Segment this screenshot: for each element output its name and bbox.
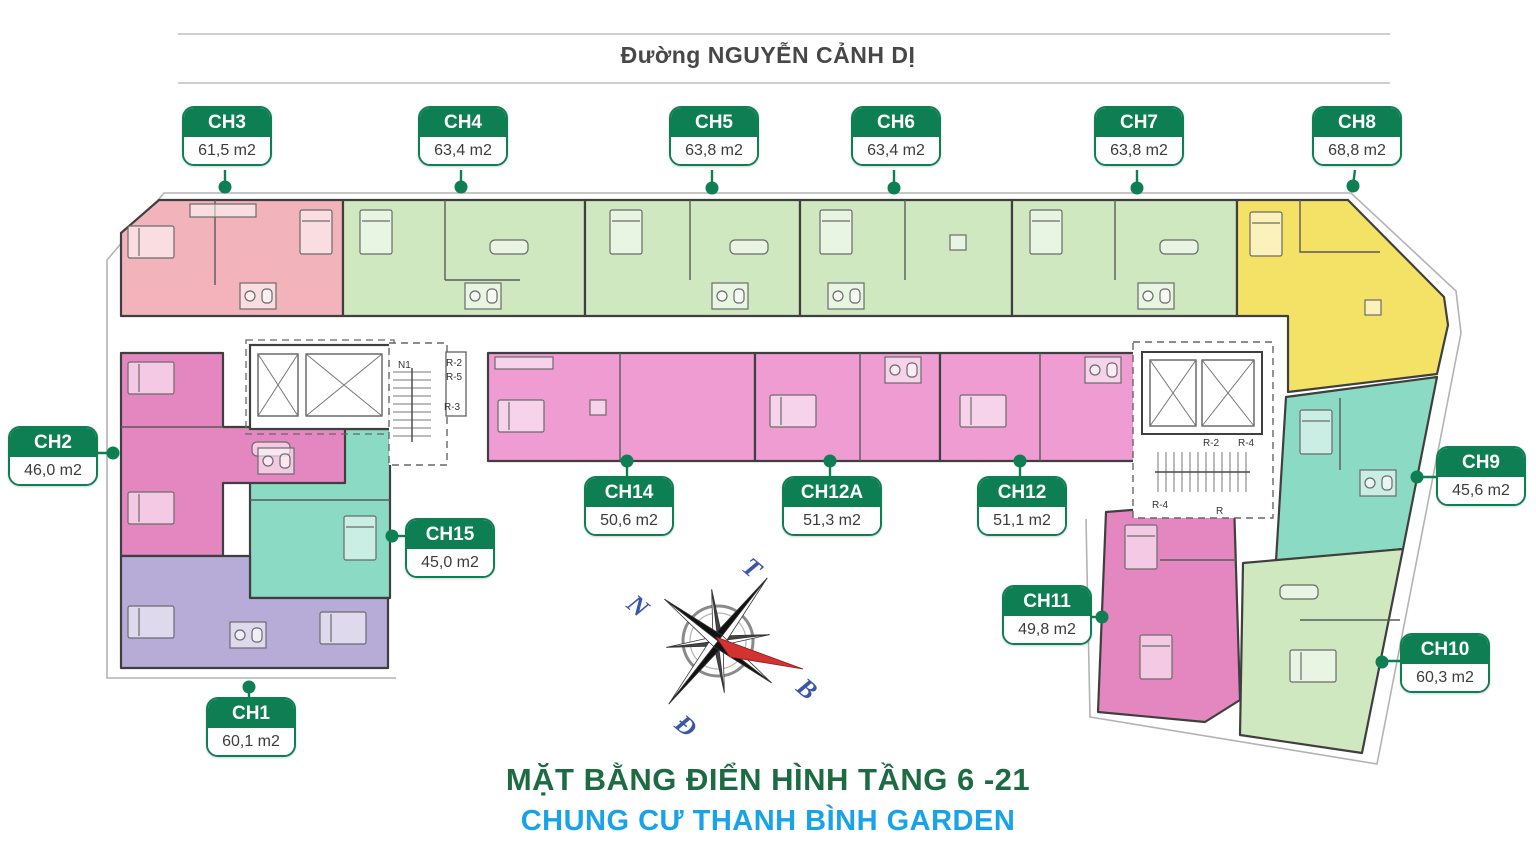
unit-area-label: 60,1 m2 [208,728,294,755]
unit-area-label: 63,4 m2 [420,137,506,164]
unit-id: CH6 [853,108,939,137]
room-r3-label: R-3 [444,402,461,413]
room-r2-right-label: R-2 [1203,438,1220,449]
unit-badge-ch12a: CH12A 51,3 m2 [782,476,882,536]
stair-n1-label: N1 [398,360,411,371]
unit-id: CH3 [184,108,270,137]
unit-id: CH12A [784,478,880,507]
unit-badge-ch14: CH14 50,6 m2 [584,476,674,536]
plan-title: MẶT BẰNG ĐIỂN HÌNH TẦNG 6 -21 [0,762,1536,798]
compass-rose: T N B Đ [611,533,825,750]
unit-area-label: 46,0 m2 [10,457,96,484]
compass-letter-north: B [790,672,823,706]
project-name: CHUNG CƯ THANH BÌNH GARDEN [0,805,1536,838]
left-elevator-core [246,340,394,434]
room-r5-label: R-5 [446,372,463,383]
unit-badge-ch7: CH7 63,8 m2 [1094,106,1184,166]
room-r4a-label: R-4 [1238,438,1255,449]
compass-north-arrow [716,637,803,669]
unit-area-label: 63,8 m2 [1096,137,1182,164]
compass-letter-west: T [737,552,769,585]
unit-badge-ch2: CH2 46,0 m2 [8,426,98,486]
stairwell-n1: N1 R-2 R-5 R-3 [389,343,466,465]
room-r-label: R [1216,506,1223,517]
unit-area-label: 50,6 m2 [586,507,672,534]
unit-badge-ch8: CH8 68,8 m2 [1312,106,1402,166]
unit-area-label: 45,6 m2 [1438,477,1524,504]
unit-badge-ch4: CH4 63,4 m2 [418,106,508,166]
unit-badge-ch15: CH15 45,0 m2 [405,518,495,578]
unit-badge-ch3: CH3 61,5 m2 [182,106,272,166]
unit-area-label: 60,3 m2 [1402,664,1488,691]
unit-area-label: 49,8 m2 [1004,616,1090,643]
unit-id: CH4 [420,108,506,137]
unit-area-label: 63,8 m2 [671,137,757,164]
unit-id: CH2 [10,428,96,457]
unit-area-label: 61,5 m2 [184,137,270,164]
unit-id: CH15 [407,520,493,549]
unit-area-label: 45,0 m2 [407,549,493,576]
room-r4b-label: R-4 [1152,500,1169,511]
unit-id: CH14 [586,478,672,507]
unit-id: CH5 [671,108,757,137]
unit-area-ch11 [1098,502,1240,722]
unit-badge-ch12: CH12 51,1 m2 [977,476,1067,536]
compass-letter-east: Đ [669,708,703,743]
compass-letter-south: N [621,588,656,624]
unit-badge-ch9: CH9 45,6 m2 [1436,446,1526,506]
unit-badge-ch5: CH5 63,8 m2 [669,106,759,166]
right-elevator-core: R-2 R-4 R-4 R [1133,342,1273,518]
unit-badge-ch11: CH11 49,8 m2 [1002,585,1092,645]
unit-badge-ch6: CH6 63,4 m2 [851,106,941,166]
unit-id: CH11 [1004,587,1090,616]
unit-id: CH9 [1438,448,1524,477]
unit-id: CH8 [1314,108,1400,137]
unit-area-ch9 [1276,377,1437,561]
room-r2-label: R-2 [446,358,463,369]
unit-id: CH10 [1402,635,1488,664]
unit-area-label: 63,4 m2 [853,137,939,164]
unit-area-label: 68,8 m2 [1314,137,1400,164]
unit-id: CH12 [979,478,1065,507]
floorplan-poster: Đường NGUYỄN CẢNH DỊ [0,0,1536,864]
unit-badge-ch1: CH1 60,1 m2 [206,697,296,757]
unit-id: CH7 [1096,108,1182,137]
unit-badge-ch10: CH10 60,3 m2 [1400,633,1490,693]
unit-id: CH1 [208,699,294,728]
unit-area-label: 51,3 m2 [784,507,880,534]
unit-area-label: 51,1 m2 [979,507,1065,534]
